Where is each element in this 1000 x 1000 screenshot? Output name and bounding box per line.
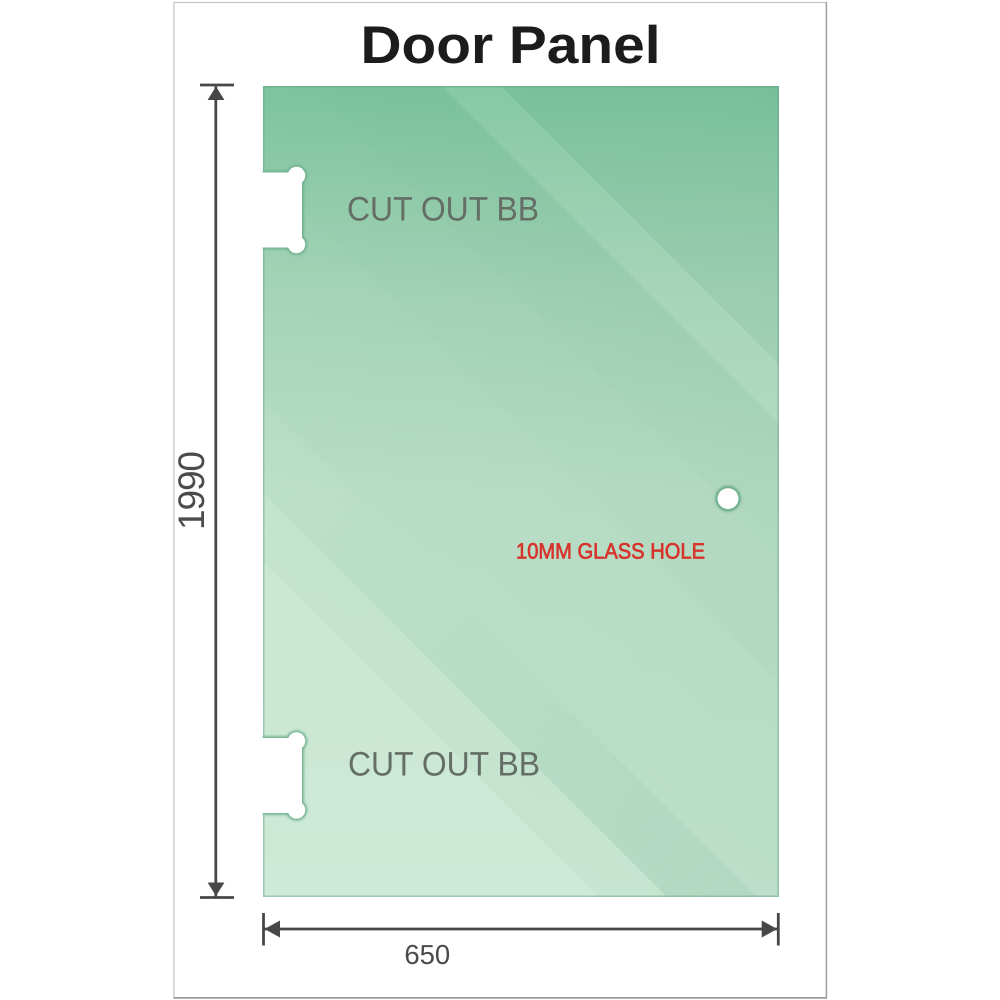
- svg-text:1990: 1990: [171, 451, 212, 530]
- svg-text:CUT OUT BB: CUT OUT BB: [348, 746, 540, 784]
- svg-text:10MM GLASS HOLE: 10MM GLASS HOLE: [516, 538, 705, 563]
- svg-text:CUT OUT BB: CUT OUT BB: [347, 190, 539, 228]
- svg-text:650: 650: [404, 939, 450, 970]
- svg-text:Door Panel: Door Panel: [361, 16, 661, 75]
